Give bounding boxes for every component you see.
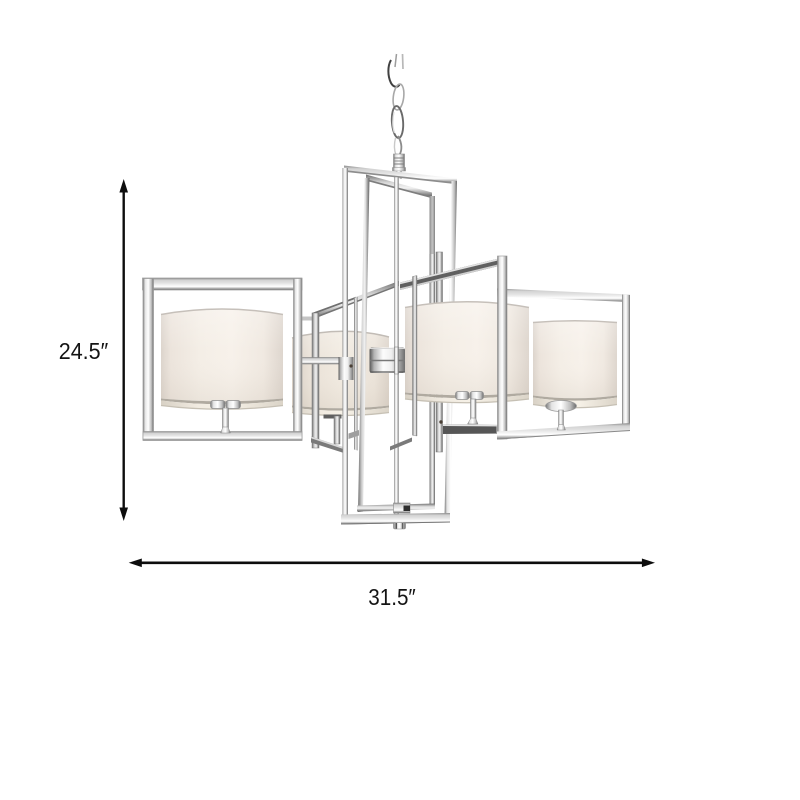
svg-text:31.5″: 31.5″ (368, 584, 416, 610)
svg-text:24.5″: 24.5″ (59, 338, 109, 364)
